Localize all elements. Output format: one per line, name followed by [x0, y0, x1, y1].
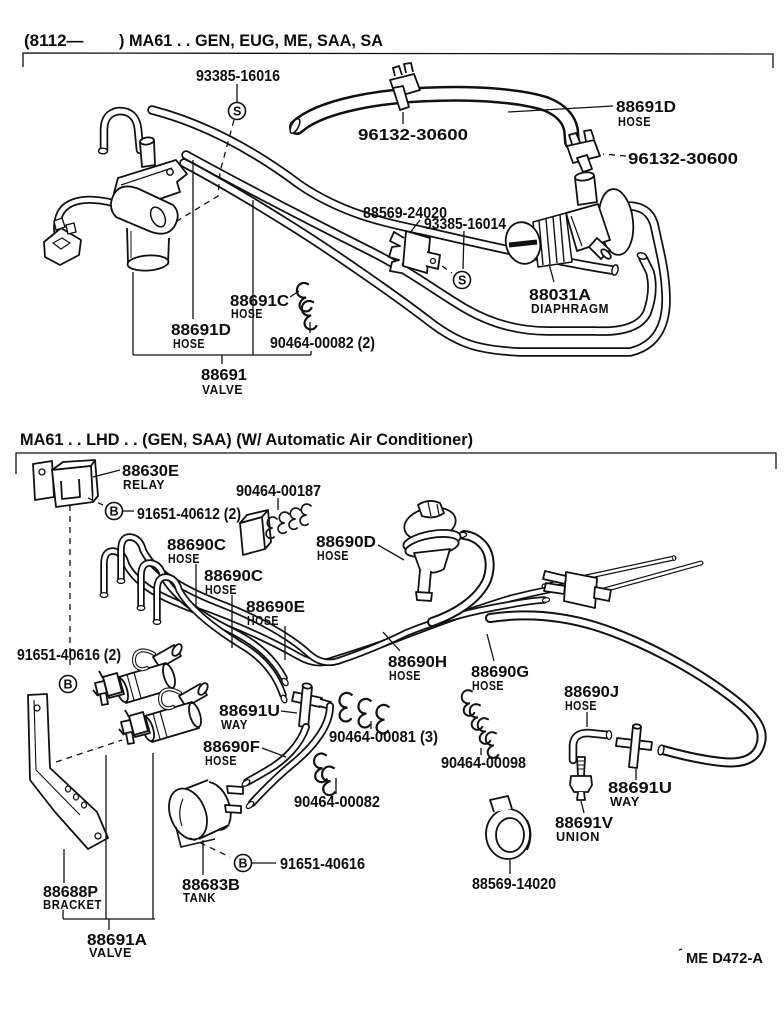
svg-text:HOSE: HOSE [205, 583, 237, 597]
svg-text:WAY: WAY [221, 718, 248, 732]
svg-text:91651-40616 (2): 91651-40616 (2) [17, 647, 121, 664]
svg-text:RELAY: RELAY [123, 478, 165, 492]
svg-text:HOSE: HOSE [618, 115, 651, 129]
svg-text:96132-30600: 96132-30600 [628, 151, 738, 168]
svg-text:) MA61 . . GEN, EUG, ME, SAA,: ) MA61 . . GEN, EUG, ME, SAA, SA [119, 31, 383, 50]
svg-text:90464-00082 (2): 90464-00082 (2) [270, 335, 375, 352]
svg-text:HOSE: HOSE [173, 337, 205, 351]
svg-text:VALVE: VALVE [89, 946, 132, 960]
svg-text:WAY: WAY [610, 795, 640, 809]
svg-text:HOSE: HOSE [231, 307, 263, 321]
svg-text:91651-40612 (2): 91651-40612 (2) [137, 506, 241, 523]
svg-text:93385-16016: 93385-16016 [196, 68, 280, 85]
svg-text:(8112—: (8112— [24, 31, 84, 50]
svg-text:BRACKET: BRACKET [43, 898, 102, 912]
svg-text:UNION: UNION [556, 830, 600, 844]
svg-text:HOSE: HOSE [472, 679, 504, 693]
svg-text:HOSE: HOSE [317, 549, 349, 563]
svg-text:90464-00098: 90464-00098 [441, 755, 526, 772]
svg-text:HOSE: HOSE [565, 699, 597, 713]
svg-text:HOSE: HOSE [205, 754, 237, 768]
svg-text:88691D: 88691D [616, 99, 676, 116]
svg-text:90464-00081 (3): 90464-00081 (3) [329, 729, 438, 746]
svg-text:HOSE: HOSE [389, 669, 421, 683]
svg-text:VALVE: VALVE [202, 383, 243, 397]
svg-text:88569-14020: 88569-14020 [472, 876, 556, 893]
svg-text:96132-30600: 96132-30600 [358, 127, 468, 144]
svg-text:88691: 88691 [201, 367, 247, 384]
svg-text:HOSE: HOSE [247, 614, 279, 628]
svg-text:93385-16014: 93385-16014 [424, 216, 506, 233]
svg-text:90464-00082: 90464-00082 [294, 794, 380, 811]
svg-text:90464-00187: 90464-00187 [236, 483, 321, 500]
svg-text:TANK: TANK [183, 891, 216, 905]
svg-text:91651-40616: 91651-40616 [280, 856, 365, 873]
svg-text:ME D472-A: ME D472-A [686, 950, 763, 967]
svg-text:HOSE: HOSE [168, 552, 200, 566]
svg-text:MA61 . . LHD . . (GEN, SAA) (W: MA61 . . LHD . . (GEN, SAA) (W/ Automati… [20, 430, 473, 449]
svg-text:DIAPHRAGM: DIAPHRAGM [531, 302, 609, 316]
